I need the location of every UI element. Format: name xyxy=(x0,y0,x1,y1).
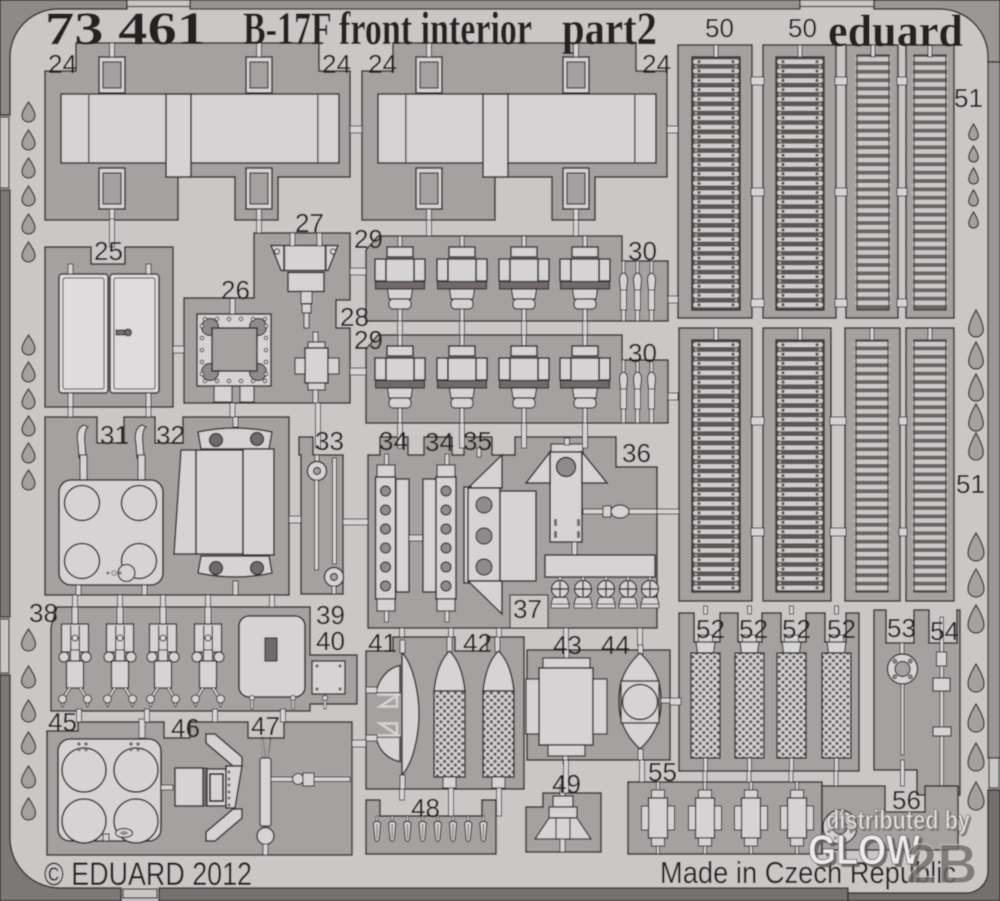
svg-text:30: 30 xyxy=(628,236,657,266)
svg-text:51: 51 xyxy=(954,83,983,113)
svg-text:52: 52 xyxy=(827,614,856,644)
svg-text:73 461: 73 461 xyxy=(45,3,206,55)
svg-text:55: 55 xyxy=(648,757,677,787)
svg-text:40: 40 xyxy=(316,626,345,656)
svg-text:eduard: eduard xyxy=(828,5,963,56)
svg-text:50: 50 xyxy=(705,13,734,43)
svg-text:36: 36 xyxy=(622,438,651,468)
svg-text:31: 31 xyxy=(100,420,129,450)
svg-text:53: 53 xyxy=(887,613,916,643)
svg-text:49: 49 xyxy=(552,769,581,799)
svg-text:52: 52 xyxy=(782,614,811,644)
svg-text:29: 29 xyxy=(354,325,383,355)
svg-text:44: 44 xyxy=(601,630,630,660)
svg-text:part2: part2 xyxy=(562,3,657,55)
svg-text:47: 47 xyxy=(251,711,280,741)
svg-text:37: 37 xyxy=(513,594,542,624)
svg-text:51: 51 xyxy=(956,469,985,499)
svg-text:B-17F front interior: B-17F front interior xyxy=(243,3,532,55)
svg-text:35: 35 xyxy=(463,426,492,456)
svg-text:© EDUARD 2012: © EDUARD 2012 xyxy=(44,856,252,892)
svg-text:GLOW: GLOW xyxy=(808,826,920,873)
svg-text:2B: 2B xyxy=(906,832,978,895)
svg-text:52: 52 xyxy=(696,614,725,644)
svg-text:27: 27 xyxy=(295,208,324,238)
svg-text:38: 38 xyxy=(29,598,58,628)
svg-text:29: 29 xyxy=(354,224,383,254)
svg-text:42: 42 xyxy=(463,628,492,658)
svg-text:46: 46 xyxy=(171,713,200,743)
svg-text:41: 41 xyxy=(368,628,397,658)
svg-text:26: 26 xyxy=(221,275,250,305)
svg-text:43: 43 xyxy=(553,630,582,660)
svg-text:25: 25 xyxy=(94,236,123,266)
svg-text:30: 30 xyxy=(628,338,657,368)
svg-text:54: 54 xyxy=(930,616,959,646)
svg-text:52: 52 xyxy=(739,614,768,644)
svg-text:32: 32 xyxy=(156,420,185,450)
svg-text:45: 45 xyxy=(48,707,77,737)
svg-text:34: 34 xyxy=(425,427,454,457)
svg-text:33: 33 xyxy=(315,426,344,456)
svg-text:48: 48 xyxy=(411,793,440,823)
svg-text:50: 50 xyxy=(788,13,817,43)
svg-text:34: 34 xyxy=(379,426,408,456)
